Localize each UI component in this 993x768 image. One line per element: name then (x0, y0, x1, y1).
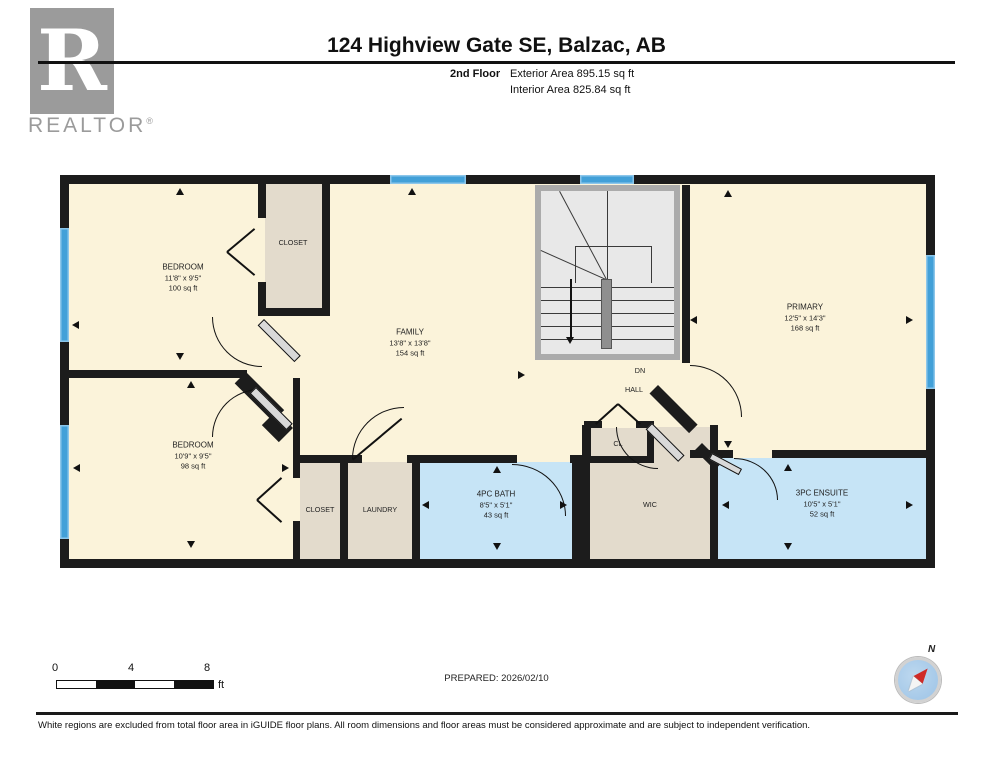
label-closet-bottom: CLOSET (306, 505, 335, 515)
interior-area-label: Interior Area 825.84 sq ft (510, 84, 630, 96)
wall (412, 462, 420, 559)
dim-arrow-up (493, 466, 501, 473)
dim-arrow-down (493, 543, 501, 550)
dim-arrow-up (408, 188, 416, 195)
wall (572, 462, 582, 559)
stair-line (607, 191, 608, 283)
wall (407, 455, 517, 463)
floorplan-page: R REALTOR® 124 Highview Gate SE, Balzac,… (0, 0, 993, 768)
label-bedroom-1: BEDROOM 11'8" x 9'5" 100 sq ft (162, 262, 203, 293)
wall (258, 282, 266, 308)
dim-arrow-left (690, 316, 697, 324)
wall (69, 370, 247, 378)
label-primary: PRIMARY 12'5" x 14'3" 168 sq ft (784, 302, 825, 333)
dim-arrow-right (906, 316, 913, 324)
label-bath-4pc: 4PC BATH 8'5" x 5'1" 43 sq ft (477, 489, 516, 520)
wall (293, 521, 300, 559)
window (60, 425, 69, 539)
wall (293, 378, 300, 478)
stair-rail (601, 279, 612, 349)
dim-arrow-right (560, 501, 567, 509)
label-bedroom-2: BEDROOM 10'9" x 9'5" 98 sq ft (172, 440, 213, 471)
wall (682, 185, 690, 363)
stair-line (651, 246, 652, 283)
staircase (535, 185, 680, 360)
wall (322, 184, 330, 308)
dim-arrow-up (784, 464, 792, 471)
dim-arrow-down (187, 541, 195, 548)
dim-arrow-down (784, 543, 792, 550)
dim-arrow-right (906, 501, 913, 509)
label-closet-top: CLOSET (279, 238, 308, 248)
wall (772, 450, 926, 458)
window (60, 228, 69, 342)
floorplan-drawing: BEDROOM 11'8" x 9'5" 100 sq ft CLOSET FA… (60, 175, 935, 568)
stair-tread (611, 300, 674, 301)
window (580, 175, 634, 184)
north-label: N (928, 644, 935, 655)
floor-label: 2nd Floor (450, 68, 500, 80)
window (926, 255, 935, 389)
dim-arrow-down (724, 441, 732, 448)
wall (258, 308, 330, 316)
dim-arrow-right (282, 464, 289, 472)
dim-arrow-down (176, 353, 184, 360)
header-divider-line (38, 61, 955, 64)
dim-arrow-left (73, 464, 80, 472)
dim-arrow-left (72, 321, 79, 329)
wall (710, 425, 718, 559)
label-ensuite-3pc: 3PC ENSUITE 10'5" x 5'1" 52 sq ft (796, 488, 848, 519)
exterior-area-label: Exterior Area 895.15 sq ft (510, 68, 634, 80)
label-cl: CL (613, 439, 622, 449)
label-laundry: LAUNDRY (363, 505, 397, 515)
down-arrow-shaft (570, 279, 572, 337)
label-family: FAMILY 13'8" x 13'8" 154 sq ft (389, 327, 430, 358)
stair-tread (611, 339, 674, 340)
label-wic: WIC (643, 500, 657, 510)
dim-arrow-up (724, 190, 732, 197)
window (390, 175, 466, 184)
wall (340, 462, 348, 559)
dim-arrow-right (518, 371, 525, 379)
stair-tread (611, 313, 674, 314)
stair-tread (611, 326, 674, 327)
down-arrow-icon (566, 337, 574, 344)
compass-icon (895, 657, 941, 703)
wall (258, 184, 266, 218)
footer-divider-line (36, 712, 958, 715)
label-hall: HALL (625, 385, 643, 395)
dim-arrow-up (176, 188, 184, 195)
realtor-wordmark: REALTOR® (28, 114, 156, 138)
compass-needle (904, 665, 932, 696)
stair-line (575, 246, 651, 247)
stair-tread (611, 287, 674, 288)
dim-arrow-up (187, 381, 195, 388)
footer-disclaimer: White regions are excluded from total fl… (38, 720, 968, 731)
dim-arrow-left (722, 501, 729, 509)
prepared-date: PREPARED: 2026/02/10 (0, 673, 993, 684)
label-dn: DN (635, 366, 645, 376)
registered-mark: ® (146, 116, 156, 126)
dim-arrow-left (422, 501, 429, 509)
page-title: 124 Highview Gate SE, Balzac, AB (0, 34, 993, 58)
